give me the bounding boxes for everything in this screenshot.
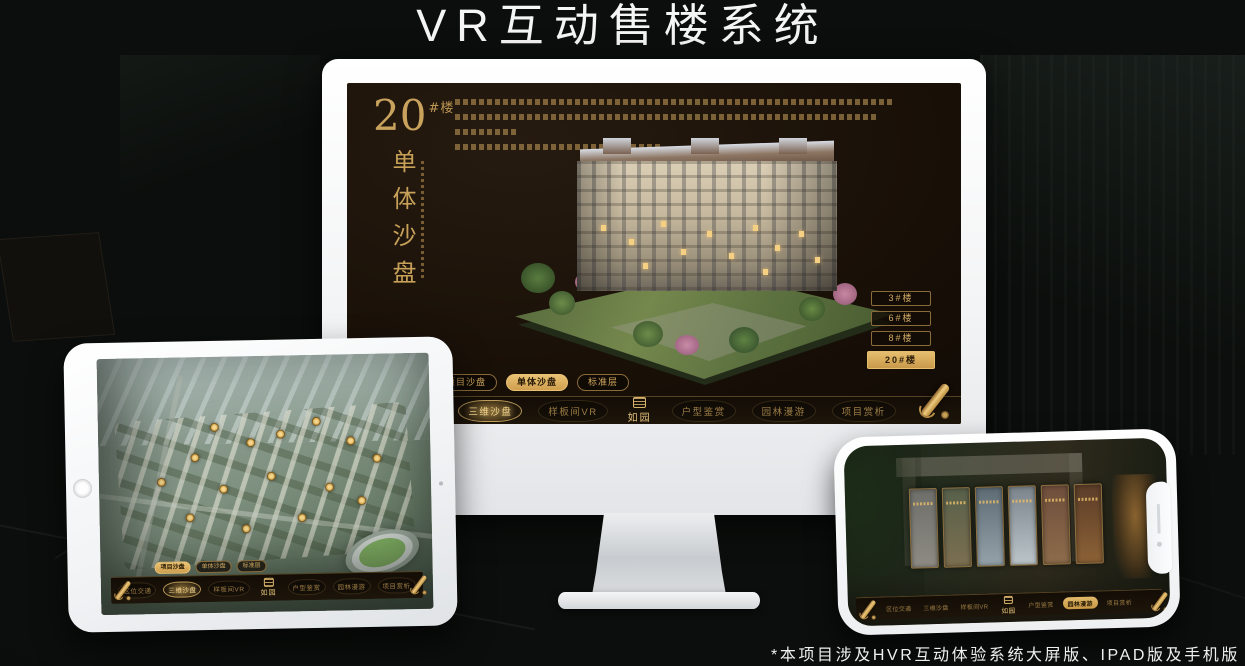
roof-dormer xyxy=(779,138,807,154)
phone-camera-icon xyxy=(1157,542,1162,547)
phone-notch xyxy=(1146,481,1173,574)
lit-window xyxy=(629,239,634,245)
nav-item-location-traffic[interactable]: 区位交通 xyxy=(883,602,915,615)
residential-building xyxy=(577,145,837,305)
lit-window xyxy=(601,225,606,231)
section-title-english-dashes xyxy=(421,161,424,279)
building-number-heading: 20#楼 xyxy=(373,91,454,140)
intro-line xyxy=(455,99,895,105)
roof-dormer xyxy=(691,138,719,154)
gate-beam xyxy=(895,452,1082,477)
scroll-icon[interactable] xyxy=(858,599,870,611)
nav-item-3d-sandtable[interactable]: 三维沙盘 xyxy=(920,601,952,614)
gallery-card[interactable] xyxy=(942,487,972,568)
tablet-home-button[interactable] xyxy=(73,478,92,497)
nav-item-floorplan[interactable]: 户型鉴赏 xyxy=(672,400,736,422)
nav-item-garden-tour[interactable]: 园林漫游 xyxy=(332,578,370,595)
subtab-single-sandtable[interactable]: 单体沙盘 xyxy=(195,561,231,574)
brand-logo: 如园 xyxy=(1001,595,1016,614)
lit-window xyxy=(707,231,712,237)
card-caption xyxy=(1045,498,1065,502)
tablet-subtabs: 项目沙盘 单体沙盘 标准层 xyxy=(154,560,266,574)
nav-item-showroom-vr[interactable]: 样板间VR xyxy=(538,400,607,422)
nav-item-showroom-vr[interactable]: 样板间VR xyxy=(208,580,249,597)
monitor-subtabs: 项目沙盘 单体沙盘 标准层 xyxy=(435,374,629,391)
phone-speaker-icon xyxy=(1157,504,1161,534)
tree xyxy=(521,263,555,293)
gallery-card[interactable] xyxy=(1074,483,1104,564)
floor-button-8[interactable]: 8#楼 xyxy=(871,331,931,346)
logo-seal-icon xyxy=(263,578,273,587)
logo-seal-icon xyxy=(633,397,646,408)
logo-text: 如园 xyxy=(628,409,652,424)
floor-button-20-selected[interactable]: 20#楼 xyxy=(867,351,935,369)
gallery-card[interactable] xyxy=(1008,485,1038,566)
subtab-standard-floor[interactable]: 标准层 xyxy=(236,560,266,573)
page-title: VR互动售楼系统 xyxy=(0,0,1245,56)
card-caption xyxy=(946,501,966,505)
lit-window xyxy=(661,221,666,227)
phone-screen: 区位交通 三维沙盘 样板间VR 如园 户型鉴赏 园林漫游 项目赏析 xyxy=(844,438,1171,627)
tree xyxy=(729,327,759,353)
tablet-screen: 项目沙盘 单体沙盘 标准层 区位交通 三维沙盘 样板间VR 如园 户型鉴赏 园林… xyxy=(97,353,434,615)
gallery-card[interactable] xyxy=(1041,484,1071,565)
scroll-icon[interactable] xyxy=(409,574,422,587)
gallery-card-strip xyxy=(909,483,1104,568)
scroll-icon[interactable] xyxy=(113,580,126,593)
nav-item-floorplan[interactable]: 户型鉴赏 xyxy=(287,579,325,596)
nav-item-project-gallery[interactable]: 项目赏析 xyxy=(1104,595,1136,608)
brand-logo: 如园 xyxy=(260,578,276,598)
floor-button-group: 3#楼 6#楼 8#楼 20#楼 xyxy=(867,291,935,369)
roof-dormer xyxy=(603,138,631,154)
scroll-icon[interactable] xyxy=(917,381,957,421)
card-caption xyxy=(979,500,999,504)
monitor-stand-base xyxy=(558,592,760,609)
scroll-knob xyxy=(941,411,949,419)
nav-item-project-gallery[interactable]: 项目赏析 xyxy=(832,400,896,422)
subtab-single-sandtable-selected[interactable]: 单体沙盘 xyxy=(506,374,568,391)
subtab-standard-floor[interactable]: 标准层 xyxy=(577,374,629,391)
blossom-tree xyxy=(675,335,699,355)
lit-window xyxy=(753,225,758,231)
monitor-stand-neck xyxy=(592,513,726,595)
nav-item-garden-tour-selected[interactable]: 园林漫游 xyxy=(1062,596,1098,609)
building-facade xyxy=(577,161,837,291)
lit-window xyxy=(815,257,820,263)
tree xyxy=(549,291,575,315)
gallery-card[interactable] xyxy=(975,486,1005,567)
card-caption xyxy=(1078,497,1098,501)
lit-window xyxy=(763,269,768,275)
gallery-card[interactable] xyxy=(909,488,939,569)
card-caption xyxy=(913,502,933,506)
phone-device: 区位交通 三维沙盘 样板间VR 如园 户型鉴赏 园林漫游 项目赏析 xyxy=(833,428,1180,635)
floor-button-3[interactable]: 3#楼 xyxy=(871,291,931,306)
nav-item-3d-sandtable-selected[interactable]: 三维沙盘 xyxy=(458,400,522,422)
building-unit-label: #楼 xyxy=(428,101,454,116)
building-model[interactable] xyxy=(515,145,895,391)
nav-item-3d-sandtable-selected[interactable]: 三维沙盘 xyxy=(163,581,201,598)
lit-window xyxy=(643,263,648,269)
lit-window xyxy=(729,253,734,259)
nav-item-garden-tour[interactable]: 园林漫游 xyxy=(752,400,816,422)
floor-button-6[interactable]: 6#楼 xyxy=(871,311,931,326)
logo-text: 如园 xyxy=(1001,604,1015,614)
brand-logo: 如园 xyxy=(628,397,652,424)
nav-item-showroom-vr[interactable]: 样板间VR xyxy=(957,599,991,612)
footnote: *本项目涉及HVR互动体验系统大屏版、IPAD版及手机版 xyxy=(771,641,1240,665)
logo-seal-icon xyxy=(1004,595,1013,603)
section-title-vertical: 单体沙盘 xyxy=(385,149,420,297)
tablet-device: 项目沙盘 单体沙盘 标准层 区位交通 三维沙盘 样板间VR 如园 户型鉴赏 园林… xyxy=(63,336,457,632)
scroll-icon[interactable] xyxy=(1150,591,1162,603)
lit-window xyxy=(681,249,686,255)
lit-window xyxy=(775,245,780,251)
nav-item-floorplan[interactable]: 户型鉴赏 xyxy=(1025,598,1057,611)
subtab-project-sandtable-selected[interactable]: 项目沙盘 xyxy=(154,561,190,574)
lit-window xyxy=(799,231,804,237)
poster: VR互动售楼系统 20#楼 单体沙盘 xyxy=(0,0,1245,666)
tree xyxy=(845,257,879,287)
tree xyxy=(633,321,663,347)
card-caption xyxy=(1012,499,1032,503)
intro-line xyxy=(455,114,879,120)
logo-text: 如园 xyxy=(261,588,277,598)
tablet-camera-icon xyxy=(439,481,443,485)
intro-line xyxy=(455,129,517,135)
